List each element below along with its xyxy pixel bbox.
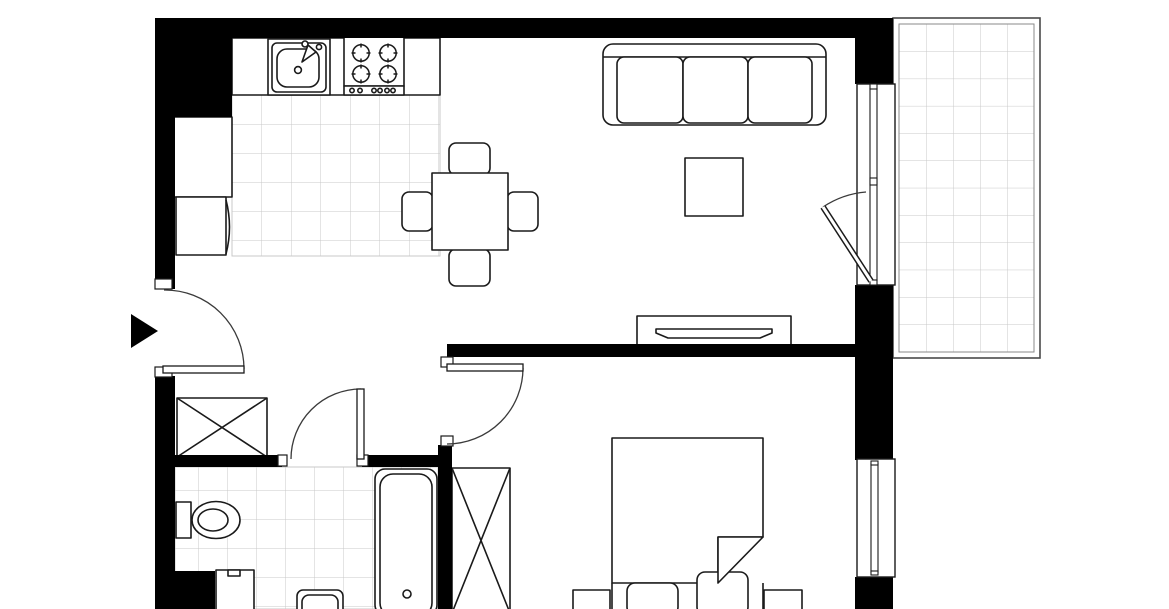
bathtub bbox=[375, 469, 437, 609]
stove bbox=[344, 36, 404, 95]
floor-plan-canvas bbox=[0, 0, 1169, 609]
floor-plan bbox=[0, 0, 1169, 609]
wall-top bbox=[155, 18, 893, 38]
chair-top bbox=[449, 143, 490, 175]
table-top bbox=[432, 173, 508, 250]
wall-bathroom-left bbox=[155, 455, 282, 467]
sofa bbox=[603, 44, 826, 125]
wall-right-lower bbox=[855, 577, 893, 609]
washbasin bbox=[297, 590, 343, 609]
bedroom-door-leaf bbox=[447, 364, 523, 371]
wall-right-mid bbox=[855, 285, 893, 460]
chair-right bbox=[507, 192, 538, 231]
chair-bottom bbox=[449, 249, 490, 286]
balcony bbox=[893, 18, 1040, 358]
wall-shaft-block bbox=[156, 571, 215, 609]
balcony-door-window bbox=[857, 84, 895, 285]
cap bbox=[155, 279, 172, 289]
nightstand-left bbox=[573, 590, 610, 609]
bedroom-window bbox=[857, 459, 895, 577]
kitchen-counter bbox=[232, 38, 440, 95]
washing-machine bbox=[216, 570, 254, 609]
kitchen-sink bbox=[268, 39, 330, 95]
bedroom-wardrobe bbox=[452, 468, 510, 609]
pillow-left bbox=[627, 583, 678, 609]
wall-bathroom-bedroom bbox=[438, 445, 452, 609]
toilet bbox=[176, 502, 240, 539]
balcony-floor-tiles bbox=[899, 24, 1034, 352]
tv-stand bbox=[637, 316, 791, 345]
wall-right-top bbox=[855, 18, 893, 84]
refrigerator bbox=[171, 117, 232, 255]
nightstand-right bbox=[764, 590, 802, 609]
wall-living-bedroom bbox=[447, 344, 858, 357]
tv-icon bbox=[656, 329, 772, 338]
coffee-table bbox=[685, 158, 743, 216]
chair-left bbox=[402, 192, 433, 231]
entrance-door-leaf bbox=[163, 366, 244, 373]
cap bbox=[278, 455, 287, 466]
bed bbox=[612, 438, 763, 609]
wall-left-upper bbox=[155, 18, 175, 289]
kitchen-floor-tiles bbox=[232, 95, 440, 256]
bathroom-door-leaf bbox=[357, 389, 364, 459]
hall-wardrobe bbox=[177, 398, 267, 457]
